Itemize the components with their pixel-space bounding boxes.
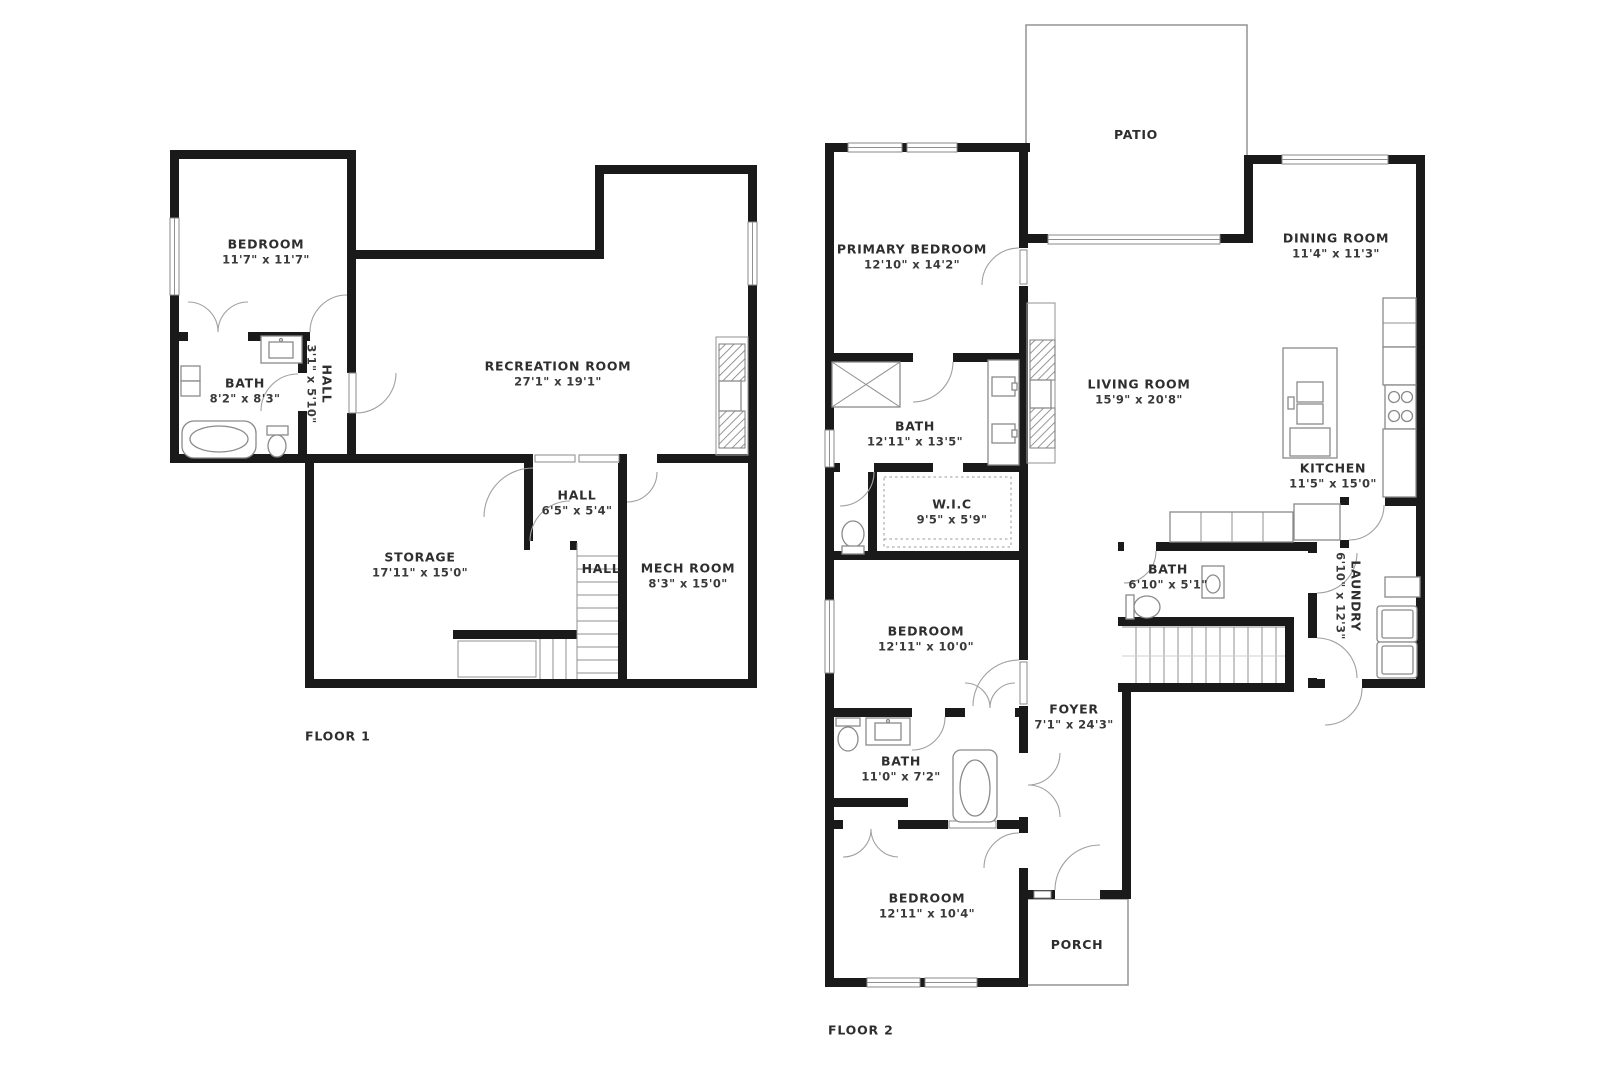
- primary-bath-vanity: [988, 360, 1019, 465]
- floor-1-plan: [170, 150, 757, 688]
- wic-closet-rod: [884, 477, 1011, 547]
- kitchen-counter: [1383, 347, 1416, 385]
- upper-bath-sink-icon: [1202, 566, 1224, 598]
- stove-icon: [1385, 385, 1416, 429]
- floor-1-label: FLOOR 1: [305, 729, 371, 744]
- refrigerator-icon: [1383, 298, 1416, 347]
- kitchen-counter-2: [1383, 429, 1416, 497]
- floor-2-stairs-icon: [1122, 627, 1285, 683]
- shower-icon: [832, 362, 900, 407]
- kitchen-island: [1283, 348, 1337, 458]
- floor-1-doors: [188, 295, 657, 541]
- floor-2-door-openings: [840, 248, 1362, 899]
- floorplan-page: BEDROOM 11'7" x 11'7" BATH 8'2" x 8'3" H…: [0, 0, 1600, 1066]
- wc-toilet-icon: [842, 521, 864, 554]
- fireplace-icon: [1027, 303, 1055, 463]
- floor-1-sink-icon: [261, 336, 302, 363]
- floor-1-fireplace-icon: [716, 337, 748, 455]
- floor-2-doors: [840, 248, 1384, 890]
- floor-2-windows: [825, 143, 1388, 987]
- floor-1-bathtub-icon: [182, 421, 256, 458]
- porch-outline: [1027, 899, 1128, 985]
- washer-icon: [1377, 606, 1417, 642]
- floor-1-toilet-icon: [267, 426, 288, 457]
- floor-1-shelves: [181, 366, 200, 396]
- floor-1-stairs-icon: [458, 543, 618, 679]
- dryer-icon: [1377, 642, 1417, 678]
- middle-bath-toilet-icon: [836, 718, 860, 751]
- kitchen-base-cabinets: [1170, 504, 1340, 542]
- floor-2-plan: [825, 25, 1425, 987]
- floorplan-drawing: [0, 0, 1600, 1066]
- floor-2-label: FLOOR 2: [828, 1023, 894, 1038]
- laundry-counter: [1385, 577, 1420, 597]
- upper-bath-toilet-icon: [1126, 595, 1160, 619]
- floor-1-door-openings: [188, 332, 657, 550]
- middle-bath-sink-icon: [866, 718, 910, 745]
- patio-outline: [1026, 25, 1247, 238]
- middle-bath-tub-icon: [953, 750, 997, 822]
- floor-1-walls: [170, 150, 757, 688]
- floor-2-walls: [825, 143, 1425, 987]
